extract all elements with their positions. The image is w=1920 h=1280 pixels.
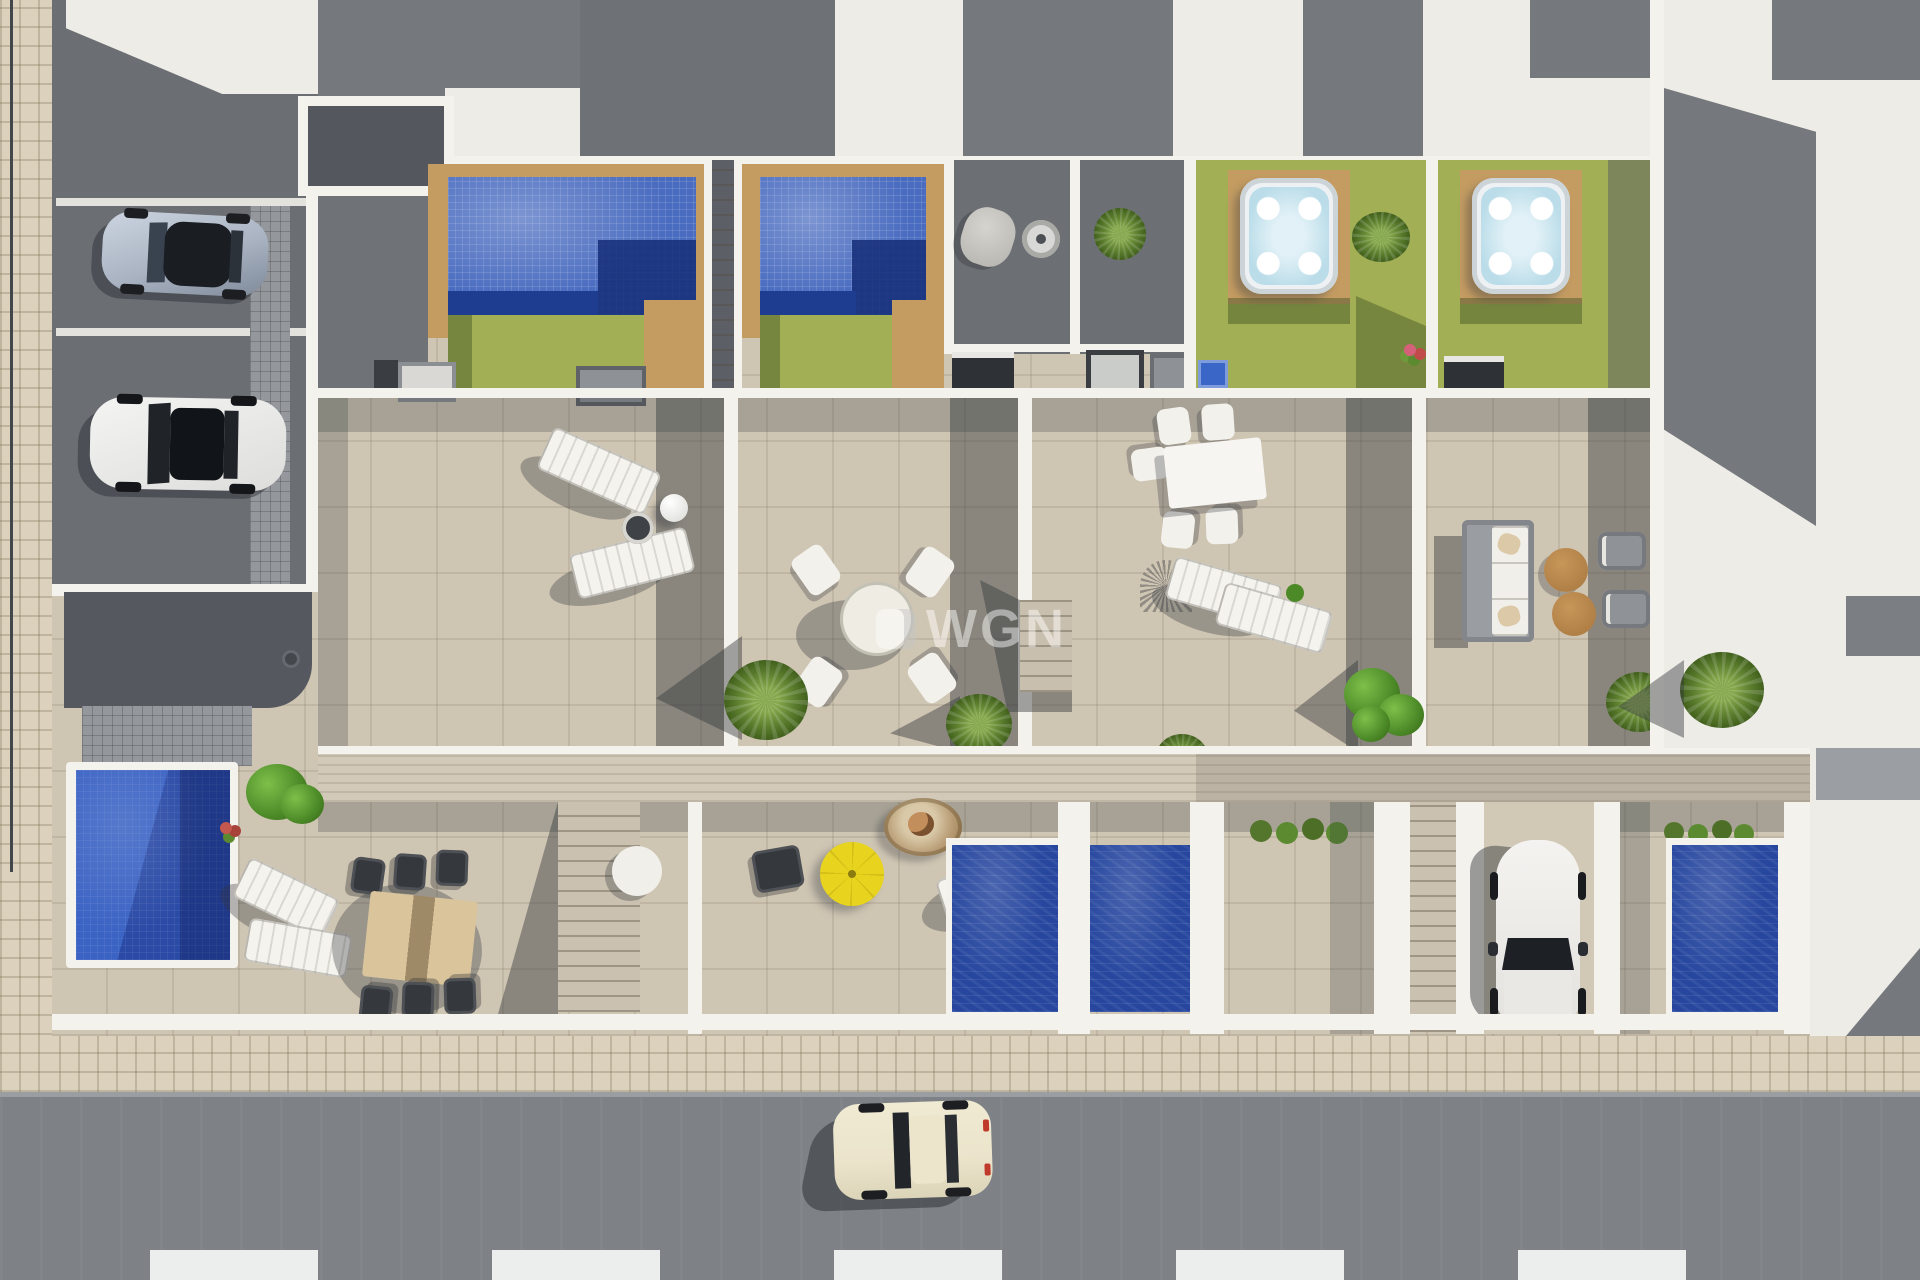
dark-chair: [350, 856, 387, 896]
dark-chair: [393, 853, 427, 891]
car-rear-glass: [945, 1115, 959, 1183]
rooftop: [835, 0, 963, 162]
staircase: [558, 802, 640, 1012]
pool-bench-strip: [448, 291, 598, 315]
left-sidewalk-strip: [0, 0, 52, 1092]
car-wheel: [231, 396, 257, 406]
car-wheel: [115, 482, 141, 492]
crosswalk-bar: [1176, 1250, 1344, 1280]
garden-wall: [704, 160, 712, 396]
car-mirror: [1578, 942, 1588, 956]
corner-pool-shade: [180, 770, 230, 960]
deck-stairs-unit2: [892, 300, 944, 396]
roof-vent: [282, 650, 300, 668]
hot-tub-water: [1481, 187, 1561, 285]
car-wheel: [942, 1100, 968, 1110]
car-wheel: [861, 1190, 887, 1200]
southrow-wall: [1374, 802, 1410, 1034]
dining-chair: [1205, 507, 1238, 544]
pouf-table: [1552, 592, 1596, 636]
wall-shadow-band: [1620, 802, 1650, 1034]
garden-pool-a: [952, 845, 1058, 1012]
street-boundary-wall: [48, 1014, 1810, 1030]
dark-chair: [443, 977, 476, 1014]
southrow-wall: [1058, 802, 1090, 1034]
crosswalk-bar: [834, 1250, 1002, 1280]
car-taillight: [984, 1163, 990, 1175]
terrace-north-wall: [318, 388, 1650, 398]
car-wheel: [124, 208, 148, 219]
garden-shade: [1608, 160, 1650, 396]
rooftop: [580, 0, 835, 162]
rooftop-shadow: [445, 0, 580, 88]
white-round-table: [612, 846, 662, 896]
hot-tub-unit3: [1240, 178, 1338, 294]
car-wheel: [1578, 988, 1586, 1016]
paver-pad: [82, 706, 252, 766]
crosswalk-bar: [1518, 1250, 1686, 1280]
garden-wall: [734, 160, 742, 396]
watermark-logo-icon: [876, 609, 916, 649]
palm-plant: [724, 660, 808, 740]
southrow-wall: [1594, 802, 1620, 1034]
strip-drain-line: [10, 0, 13, 872]
garden-wall: [1184, 160, 1196, 396]
garden-tree: [280, 784, 324, 824]
parked-silver-car: [100, 210, 274, 303]
garden-wall: [1426, 160, 1438, 396]
person-in-chair: [908, 812, 934, 836]
car-mirror: [1488, 942, 1498, 956]
terrace-shadow: [318, 398, 348, 752]
garden-pool-c: [1672, 845, 1778, 1012]
crosswalk-bar: [492, 1250, 660, 1280]
car-wheel: [120, 284, 144, 295]
car-wheel: [1490, 872, 1498, 900]
dining-chair: [1201, 403, 1235, 441]
parking-line: [56, 198, 306, 206]
car-cabin: [162, 221, 233, 288]
dark-chair: [751, 844, 806, 894]
car-wheel: [1490, 988, 1498, 1016]
pouf-table: [1544, 548, 1588, 592]
flower-bush: [220, 822, 232, 834]
parking-east-wall: [306, 156, 318, 592]
rooftop: [963, 0, 1173, 162]
dining-table: [1163, 437, 1267, 509]
palm-plant: [946, 694, 1012, 754]
dining-chair: [1160, 510, 1196, 549]
hedge-plants: [1250, 820, 1272, 842]
car-roof: [169, 408, 224, 481]
crosswalk-bar: [150, 1250, 318, 1280]
rooftop-shadow: [1530, 0, 1650, 78]
car-rear-glass: [223, 411, 238, 479]
palm-plant: [1680, 652, 1764, 728]
pool-bench-strip: [760, 291, 856, 315]
car-wheel: [858, 1103, 884, 1113]
southrow-wall: [688, 802, 702, 1034]
neighbor-west-wall: [1650, 0, 1664, 748]
street-car: [832, 1099, 998, 1209]
fountain-center: [1036, 234, 1046, 244]
driveway-car: [1490, 840, 1588, 1028]
hot-tub-unit4: [1472, 178, 1570, 294]
ball-lamp: [660, 494, 688, 522]
neighbor-roof-shadow: [1772, 0, 1920, 80]
car-roof: [1504, 970, 1572, 1020]
watermark: WGN: [876, 598, 1067, 660]
pool-cover-item: [1198, 360, 1228, 388]
sidewalk: [40, 1036, 1920, 1092]
lawn-shade: [760, 315, 780, 396]
watermark-text: WGN: [926, 598, 1067, 660]
rooftop: [1303, 0, 1423, 162]
garage-roof: [64, 592, 312, 708]
southrow-wall: [1190, 802, 1224, 1034]
kitchen-wall: [952, 344, 1184, 352]
garden-wall: [944, 160, 954, 354]
side-table: [622, 512, 654, 544]
southrow-wall: [1784, 802, 1810, 1034]
walkway-north-edge: [318, 746, 1810, 754]
parasol-tip: [848, 870, 856, 878]
parked-white-car: [89, 396, 291, 495]
dining-chair: [1156, 406, 1193, 446]
flower-bush: [1404, 344, 1416, 356]
car-wheel: [945, 1187, 971, 1197]
curb-line: [0, 1092, 1920, 1097]
staircase: [1410, 802, 1456, 1032]
lounge-chair: [1602, 590, 1650, 628]
palm-plant: [1094, 208, 1146, 260]
aerial-render: WGN: [0, 0, 1920, 1280]
car-windshield: [147, 403, 170, 485]
walkway-shade: [1196, 754, 1810, 802]
hot-tub-water: [1249, 187, 1329, 285]
rooftop: [1173, 0, 1303, 162]
car-roof: [909, 1115, 947, 1184]
car-wheel: [222, 289, 246, 300]
neighbor-shade-band: [1816, 748, 1920, 800]
palm-plant: [1352, 212, 1410, 262]
dark-chair: [435, 849, 468, 886]
wood-dining-table: [362, 891, 478, 988]
car-wheel: [117, 394, 143, 404]
deck-shadow: [1228, 298, 1350, 324]
wall-shadow-band: [1330, 802, 1374, 1034]
car-wheel: [229, 484, 255, 494]
side-plant: [1286, 584, 1304, 602]
lounge-chair: [1598, 532, 1646, 570]
deck-shadow: [1460, 298, 1582, 324]
dark-chair: [401, 981, 434, 1018]
stair-corridor: [712, 160, 734, 396]
car-taillight: [983, 1119, 989, 1131]
garden-wall: [1070, 160, 1080, 354]
leafy-plant: [1352, 706, 1390, 742]
car-windshield: [1502, 938, 1574, 970]
car-wheel: [1578, 872, 1586, 900]
deck-stairs-unit1: [644, 300, 712, 396]
car-wheel: [226, 213, 250, 224]
neighbor-roof-shadow: [1846, 596, 1920, 656]
garden-pool-b: [1090, 845, 1190, 1012]
